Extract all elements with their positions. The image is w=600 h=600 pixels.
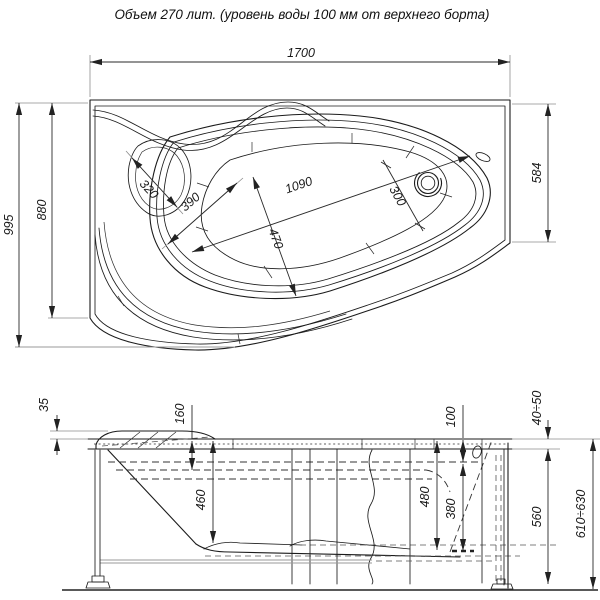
dim-470-label: 470	[266, 226, 286, 250]
dim-headrest-height: 35	[37, 398, 108, 455]
drawing-sheet: Объем 270 лит. (уровень воды 100 мм от в…	[0, 0, 600, 600]
rim-band	[88, 439, 512, 449]
dim-1090-label: 1090	[283, 174, 314, 196]
dim-water-depth: 380	[444, 464, 463, 551]
dim-560-label: 560	[530, 507, 544, 528]
left-leg	[86, 450, 110, 588]
dim-seat-depth: 160	[173, 404, 192, 470]
dim-1700-label: 1700	[287, 46, 315, 60]
drawing-title: Объем 270 лит. (уровень воды 100 мм от в…	[114, 7, 489, 22]
side-view: 35 160 460 100 480 380	[37, 391, 600, 590]
frame-rail	[100, 560, 495, 563]
dim-drain-zone-width: 300	[381, 160, 425, 231]
dim-overall-height: 610÷630	[574, 439, 593, 589]
dim-inner-width: 880	[35, 103, 88, 318]
plan-view: 1700 995 880 584 320	[2, 46, 556, 350]
dim-584-label: 584	[530, 163, 544, 184]
right-leg	[491, 579, 513, 589]
dim-610-630-label: 610÷630	[574, 490, 588, 539]
dim-320-label: 320	[137, 177, 161, 202]
dim-40-50-label: 40÷50	[530, 391, 544, 426]
headrest-profile	[96, 431, 215, 449]
hidden-contours	[108, 440, 558, 556]
dim-headrest-width: 320	[126, 151, 183, 214]
dim-460-label: 460	[194, 490, 208, 511]
dim-995-label: 995	[2, 215, 16, 236]
overflow-hole-side	[471, 445, 482, 459]
dim-bowl-depth: 460	[194, 441, 213, 543]
dim-water-level: 100	[444, 405, 463, 462]
dim-right-width: 584	[512, 104, 556, 242]
dim-well-length: 1090	[192, 156, 470, 252]
plan-outline	[90, 100, 510, 350]
overflow-hole-plan	[475, 151, 492, 164]
dim-depth-at-drain: 480	[418, 441, 437, 550]
dim-380-label: 380	[444, 499, 458, 520]
dim-300-label: 300	[386, 184, 408, 209]
bathing-well	[150, 114, 491, 299]
apron-panels	[292, 443, 508, 588]
dim-100-label: 100	[444, 407, 458, 428]
dim-overall-width: 995	[2, 103, 235, 347]
bathtub-technical-drawing: Объем 270 лит. (уровень воды 100 мм от в…	[0, 0, 600, 600]
dim-35-label: 35	[37, 398, 51, 412]
dim-160-label: 160	[173, 404, 187, 425]
dim-480-label: 480	[418, 487, 432, 508]
drain	[415, 173, 442, 197]
dim-880-label: 880	[35, 200, 49, 221]
well-floor-ticks	[196, 133, 452, 278]
bowl-profile	[108, 450, 460, 557]
dim-overall-length: 1700	[90, 46, 510, 97]
dim-body-height: 560	[530, 449, 548, 584]
dim-rim-height: 40÷50	[512, 391, 600, 449]
